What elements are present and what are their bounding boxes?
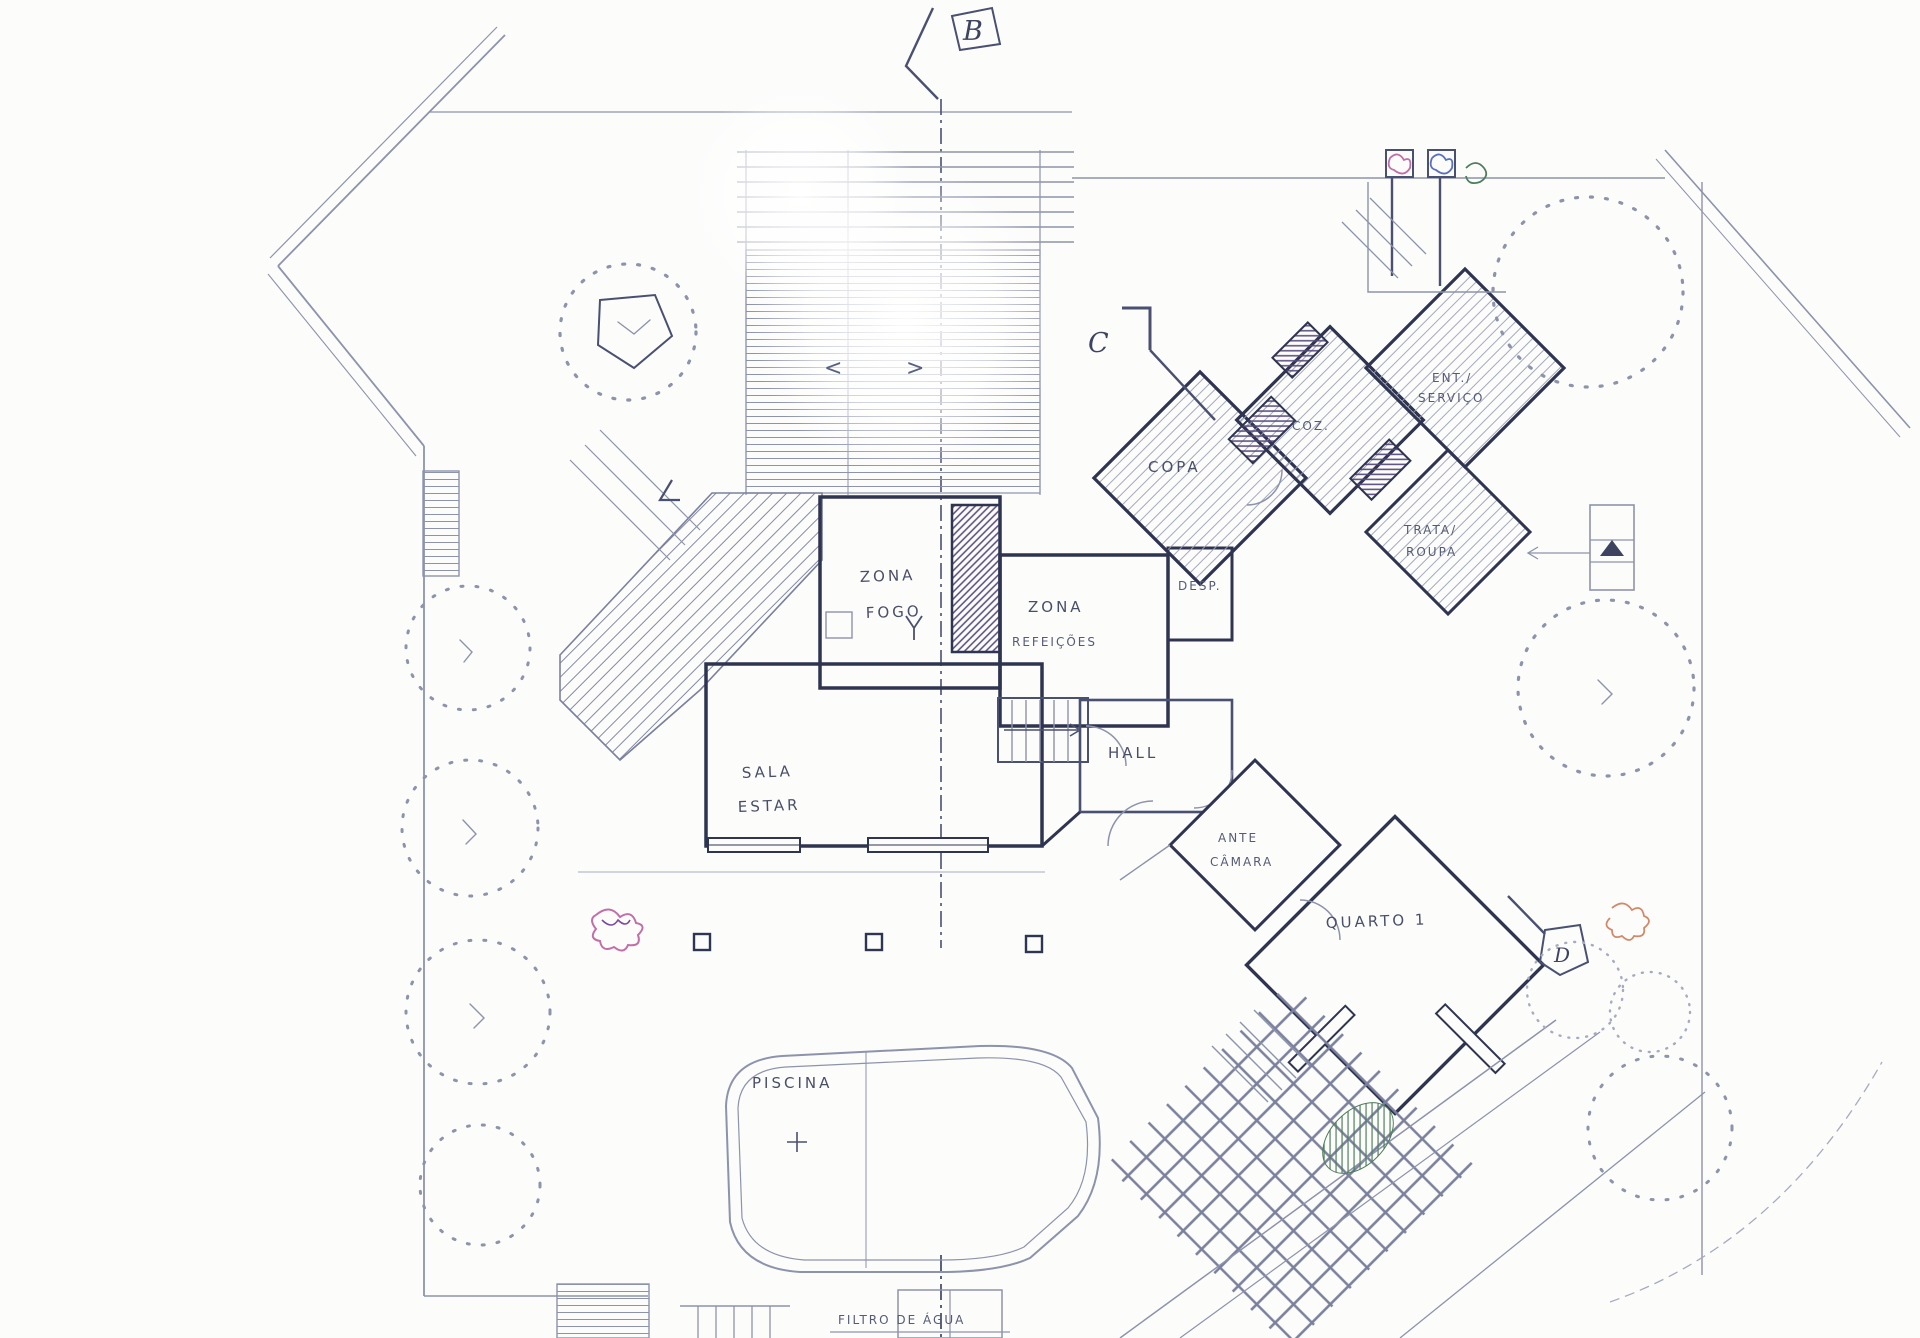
label-zona-refeicoes-2: REFEIÇÕES — [1012, 634, 1097, 649]
column — [694, 934, 710, 950]
shrub — [1527, 942, 1623, 1038]
label-ent-servico-1: ENT./ — [1432, 371, 1472, 385]
section-marker-c: C — [1088, 328, 1109, 359]
label-quarto: QUARTO 1 — [1326, 910, 1428, 932]
top-deck: < > — [685, 80, 1074, 495]
label-trata-roupa-1: TRATA/ — [1403, 523, 1457, 537]
tree — [560, 264, 696, 400]
label-zona-fogo-1: ZONA — [860, 566, 916, 586]
label-hall: HALL — [1108, 744, 1158, 762]
label-ante-camara-1: ANTE — [1218, 831, 1258, 845]
patio — [578, 872, 1045, 952]
label-ent-servico-2: SERVIÇO — [1418, 391, 1484, 405]
property-boundary — [268, 27, 1910, 1338]
label-sala-estar-2: ESTAR — [738, 796, 801, 816]
door-arc — [1108, 801, 1153, 846]
column — [866, 934, 882, 950]
planter-boxes — [1342, 150, 1506, 292]
column — [1026, 936, 1042, 952]
photo-glare — [685, 80, 915, 310]
deck-arrow-right: > — [906, 356, 924, 381]
label-copa: COPA — [1148, 458, 1201, 476]
bottom-stair — [557, 1284, 649, 1338]
label-zona-fogo-2: FOGO — [866, 602, 922, 622]
label-coz: COZ. — [1292, 419, 1330, 433]
floor-plan-sheet: B < > — [0, 0, 1920, 1338]
room-sala-estar — [706, 664, 1042, 846]
label-sala-estar-1: SALA — [742, 762, 794, 782]
bay-structure — [598, 295, 672, 368]
floor-plan-svg: B < > — [0, 0, 1920, 1338]
hearth-detail — [826, 612, 852, 638]
label-trata-roupa-2: ROUPA — [1406, 545, 1457, 559]
label-ante-camara-2: CÂMARA — [1210, 854, 1273, 869]
section-marker-b: B — [962, 16, 983, 47]
garden-stair — [423, 471, 459, 576]
flower-scribble — [592, 909, 643, 950]
bottom-structures — [557, 1284, 1010, 1338]
east-structure — [1528, 505, 1634, 590]
label-zona-refeicoes-1: ZONA — [1028, 598, 1084, 616]
triangle-marker — [1600, 540, 1624, 556]
flower-scribble — [1606, 903, 1649, 940]
section-marker-d: D — [1553, 943, 1570, 967]
tree — [420, 1125, 540, 1245]
label-desp: DESP. — [1178, 579, 1222, 593]
fireplace-mass — [952, 505, 1000, 652]
shrub — [1610, 972, 1690, 1052]
deck-arrow-left: < — [824, 356, 842, 381]
label-piscina: PISCINA — [752, 1074, 832, 1092]
label-filtro-de-agua: FILTRO DE ÁGUA — [838, 1312, 965, 1327]
pool-cross — [787, 1132, 807, 1152]
house-service-wing — [1094, 269, 1564, 614]
bottom-steps — [680, 1306, 790, 1338]
